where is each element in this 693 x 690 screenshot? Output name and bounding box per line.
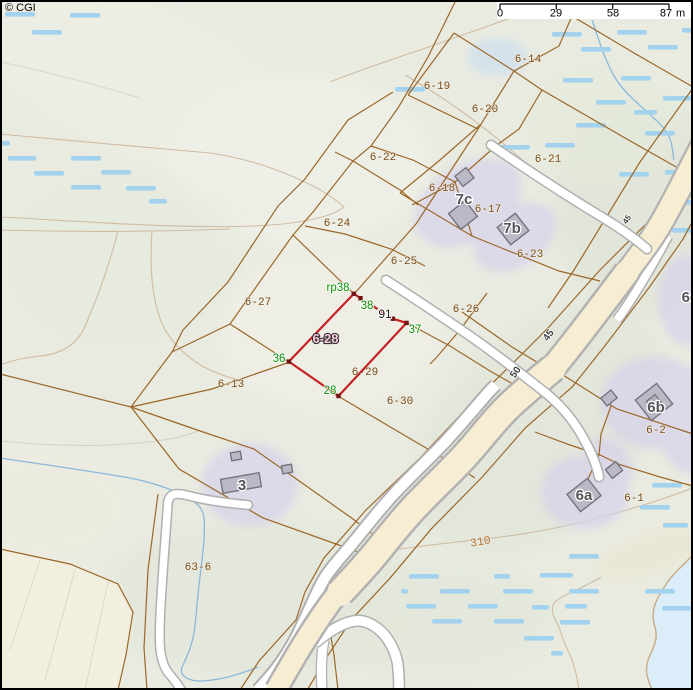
svg-text:29: 29: [550, 8, 562, 20]
svg-text:6-2: 6-2: [646, 425, 666, 437]
svg-text:m: m: [676, 8, 685, 20]
svg-text:rp38: rp38: [326, 282, 349, 294]
svg-text:6-28: 6-28: [312, 331, 338, 346]
svg-text:28: 28: [324, 385, 337, 397]
svg-text:6-24: 6-24: [324, 218, 351, 230]
svg-text:7c: 7c: [456, 191, 473, 208]
svg-text:6-1: 6-1: [624, 493, 644, 505]
svg-text:6-17: 6-17: [475, 204, 501, 216]
svg-text:6-27: 6-27: [245, 297, 271, 309]
svg-text:6-23: 6-23: [517, 249, 543, 261]
svg-text:6-22: 6-22: [370, 152, 396, 164]
svg-text:37: 37: [409, 324, 422, 336]
svg-text:91: 91: [378, 307, 392, 321]
svg-text:6-25: 6-25: [391, 256, 417, 268]
svg-text:6-30: 6-30: [387, 396, 413, 408]
svg-text:87: 87: [660, 8, 672, 20]
svg-text:63-6: 63-6: [185, 562, 211, 574]
svg-text:6-21: 6-21: [535, 154, 562, 166]
svg-text:58: 58: [607, 8, 619, 20]
svg-text:6b: 6b: [647, 399, 665, 416]
svg-text:6-26: 6-26: [453, 304, 479, 316]
svg-text:6-18: 6-18: [429, 183, 455, 195]
svg-text:6-19: 6-19: [424, 81, 450, 93]
svg-text:7b: 7b: [503, 220, 521, 237]
svg-text:38: 38: [361, 300, 374, 312]
svg-text:0: 0: [497, 8, 503, 20]
svg-text:6-20: 6-20: [472, 104, 498, 116]
svg-text:36: 36: [273, 353, 286, 365]
svg-text:6-13: 6-13: [218, 379, 244, 391]
svg-text:6-14: 6-14: [515, 54, 542, 66]
svg-text:3: 3: [238, 477, 246, 494]
svg-text:6a: 6a: [576, 487, 593, 504]
svg-text:© CGI: © CGI: [5, 2, 36, 14]
